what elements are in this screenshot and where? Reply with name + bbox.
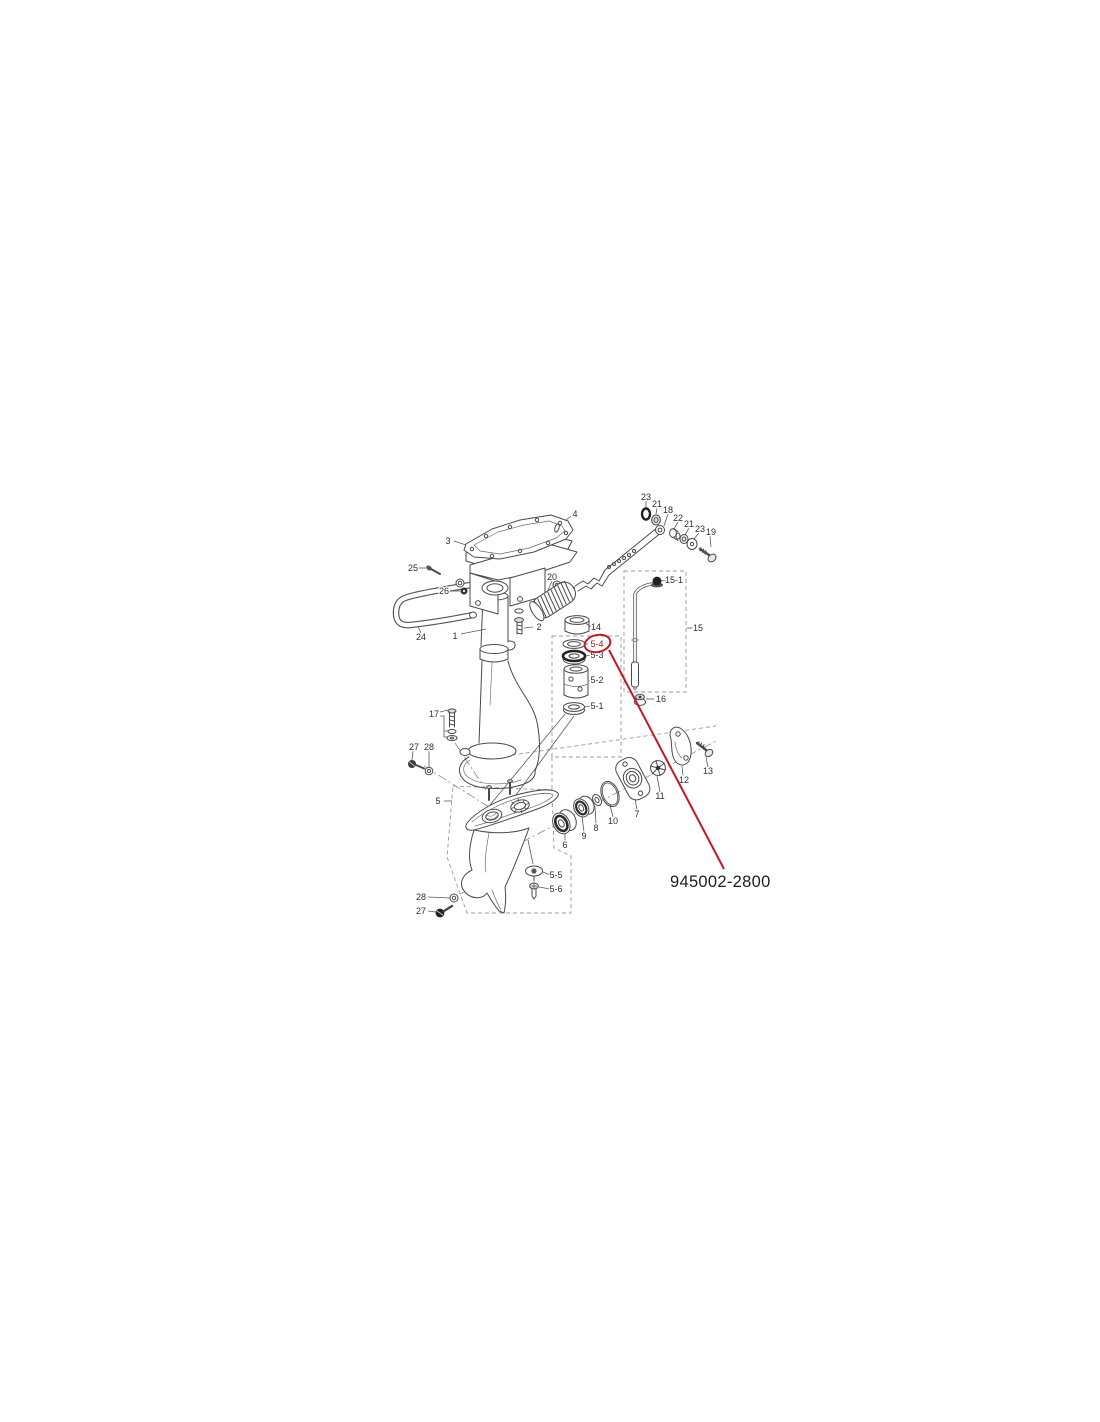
- washer-5-5: [526, 866, 543, 881]
- callout-part-number: 945002-2800: [670, 874, 771, 891]
- part-label-5-4: 5-4: [590, 639, 603, 649]
- o-ring-10: [598, 779, 623, 809]
- screw-27b: [436, 906, 452, 917]
- bolt-2: [515, 609, 524, 634]
- bolt-17: [447, 709, 457, 741]
- part-label-5-5: 5-5: [549, 870, 562, 880]
- parts-diagram-page: 123455-15-25-35-45-55-667891011121314151…: [0, 0, 1100, 1422]
- screw-5-6: [530, 883, 539, 899]
- pump-base-12: [670, 727, 691, 765]
- ring-28b: [450, 894, 458, 902]
- part-label-5: 5: [435, 796, 440, 806]
- bolt-19: [700, 548, 718, 564]
- part-label-24: 24: [416, 632, 426, 642]
- sleeve-5-2: [564, 665, 588, 698]
- part-label-19: 19: [706, 527, 716, 537]
- part-label-13: 13: [703, 766, 713, 776]
- part-label-22: 22: [673, 513, 683, 523]
- cup-14: [565, 616, 589, 634]
- grommet-15-1: [651, 577, 663, 588]
- collar-22: [670, 529, 680, 541]
- part-label-4: 4: [572, 509, 577, 519]
- washer-23a: [642, 509, 650, 520]
- part-label-9: 9: [581, 831, 586, 841]
- ring-5-1: [564, 703, 585, 715]
- part-label-15-1: 15-1: [665, 575, 683, 585]
- part-label-28: 28: [416, 892, 426, 902]
- part-label-25: 25: [408, 563, 418, 573]
- part-label-5-6: 5-6: [549, 884, 562, 894]
- part-label-12: 12: [679, 775, 689, 785]
- part-label-21: 21: [684, 519, 694, 529]
- part-label-21: 21: [652, 499, 662, 509]
- impeller-11: [651, 761, 666, 776]
- shift-rod-15: [632, 584, 653, 688]
- part-label-1: 1: [452, 631, 457, 641]
- part-label-28: 28: [424, 742, 434, 752]
- part-label-27: 27: [409, 742, 419, 752]
- part-label-15: 15: [693, 623, 703, 633]
- ring-28a: [425, 767, 433, 775]
- callout-group: [583, 632, 724, 869]
- part-label-20: 20: [547, 572, 557, 582]
- part-label-8: 8: [593, 823, 598, 833]
- part-label-3: 3: [445, 536, 450, 546]
- exploded-diagram: 123455-15-25-35-45-55-667891011121314151…: [0, 0, 1100, 1422]
- part-label-7: 7: [634, 809, 639, 819]
- ring-5-3: [563, 651, 585, 664]
- washer-23b: [687, 539, 697, 550]
- part-label-2: 2: [536, 622, 541, 632]
- part-label-5-1: 5-1: [590, 701, 603, 711]
- part-label-5-2: 5-2: [590, 675, 603, 685]
- ring-5-4: [563, 640, 585, 649]
- screw-27a: [408, 760, 424, 769]
- part-label-17: 17: [429, 709, 439, 719]
- part-label-10: 10: [608, 816, 618, 826]
- part-label-6: 6: [562, 840, 567, 850]
- part-label-26: 26: [439, 586, 449, 596]
- gearcase-5: [461, 780, 558, 913]
- screw-25: [425, 565, 440, 574]
- part-label-16: 16: [656, 694, 666, 704]
- part-label-14: 14: [591, 622, 601, 632]
- part-label-27: 27: [416, 906, 426, 916]
- part-label-11: 11: [655, 791, 664, 801]
- bushing-26: [461, 588, 468, 595]
- part-label-23: 23: [695, 524, 705, 534]
- part-label-18: 18: [663, 505, 673, 515]
- nut-21a: [652, 515, 661, 525]
- part-label-23: 23: [641, 492, 651, 502]
